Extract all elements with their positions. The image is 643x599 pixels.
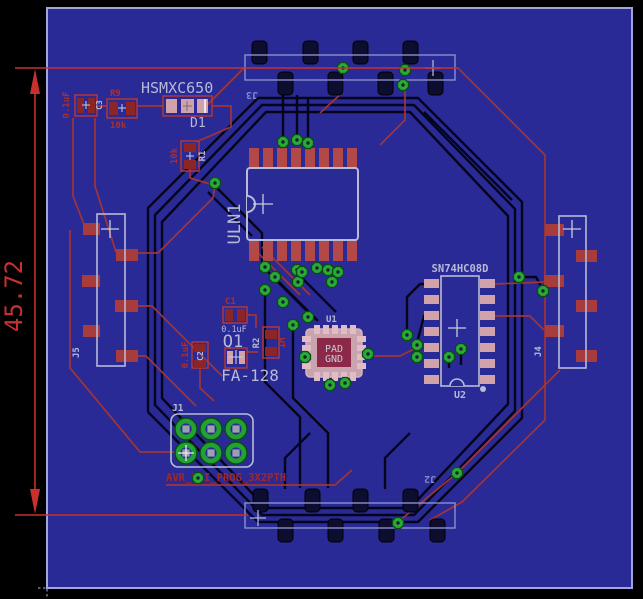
dimension-value: 45.72 — [0, 260, 28, 332]
pad[interactable] — [480, 343, 495, 352]
pad[interactable] — [333, 148, 343, 168]
c2-ref: C2 — [196, 351, 205, 361]
pad[interactable] — [347, 148, 357, 168]
pad[interactable] — [424, 327, 439, 336]
pad[interactable] — [378, 72, 393, 95]
pad[interactable] — [314, 325, 320, 334]
board-drawing: J3 J2 J5 — [0, 0, 643, 599]
pad[interactable] — [278, 72, 293, 95]
pad[interactable] — [305, 148, 315, 168]
pad[interactable] — [424, 375, 439, 384]
pad[interactable] — [252, 41, 267, 64]
u2-ref: U2 — [454, 390, 466, 401]
u1-ref: U1 — [326, 315, 337, 325]
r1-ref: R1 — [198, 151, 208, 162]
pad[interactable] — [197, 99, 208, 113]
via[interactable] — [292, 135, 303, 146]
via[interactable] — [210, 178, 221, 189]
c2-value: 0.1uF — [181, 341, 191, 368]
via[interactable] — [393, 518, 404, 529]
j1-pin[interactable] — [200, 418, 222, 440]
pad[interactable] — [116, 249, 138, 261]
j1-ref: J1 — [172, 403, 184, 414]
via[interactable] — [538, 286, 549, 297]
via[interactable] — [412, 340, 423, 351]
via[interactable] — [278, 297, 289, 308]
via[interactable] — [260, 262, 271, 273]
j1-pin[interactable] — [225, 418, 247, 440]
pad[interactable] — [319, 148, 329, 168]
pad[interactable] — [116, 350, 138, 362]
via[interactable] — [288, 320, 299, 331]
d1-ref: D1 — [190, 116, 206, 131]
pad[interactable] — [403, 41, 418, 64]
pad[interactable] — [480, 295, 495, 304]
via[interactable] — [312, 263, 323, 274]
via[interactable] — [514, 272, 525, 283]
pad[interactable] — [166, 99, 177, 113]
r1-value: 10k — [170, 147, 180, 164]
pad[interactable] — [428, 72, 443, 95]
pad[interactable] — [302, 336, 311, 342]
via[interactable] — [363, 349, 374, 360]
pad[interactable] — [302, 363, 311, 369]
pad[interactable] — [347, 240, 357, 261]
via[interactable] — [297, 267, 308, 278]
pad[interactable] — [323, 325, 329, 334]
pad[interactable] — [277, 240, 287, 261]
via[interactable] — [333, 267, 344, 278]
pad[interactable] — [265, 330, 277, 339]
pad[interactable] — [424, 295, 439, 304]
pad[interactable] — [424, 279, 439, 288]
via[interactable] — [278, 137, 289, 148]
pad[interactable] — [319, 240, 329, 261]
pad[interactable] — [545, 224, 564, 236]
via[interactable] — [300, 352, 311, 363]
r9-ref: R9 — [110, 89, 121, 99]
pad[interactable] — [194, 344, 206, 352]
pad[interactable] — [424, 343, 439, 352]
pad[interactable] — [263, 240, 273, 261]
u2-pin1-dot — [480, 386, 486, 392]
pad[interactable] — [545, 325, 564, 337]
pad[interactable] — [544, 275, 564, 287]
via[interactable] — [398, 80, 409, 91]
pad[interactable] — [314, 372, 320, 381]
pad[interactable] — [424, 359, 439, 368]
pad[interactable] — [291, 240, 301, 261]
pad[interactable] — [109, 102, 118, 115]
pad[interactable] — [379, 519, 394, 542]
pad[interactable] — [430, 519, 445, 542]
c3-value: 0.1uF — [62, 91, 72, 118]
pad[interactable] — [341, 325, 347, 334]
pad[interactable] — [277, 148, 287, 168]
j1-footprint-label: AVR_SPI_PROG_3X2PTH — [166, 472, 286, 484]
via[interactable] — [412, 352, 423, 363]
pad[interactable] — [350, 372, 356, 381]
via[interactable] — [456, 344, 467, 355]
pad[interactable] — [249, 148, 259, 168]
pad[interactable] — [480, 375, 495, 384]
j2-label: J2 — [424, 473, 436, 484]
pad[interactable] — [333, 240, 343, 261]
pad[interactable] — [480, 359, 495, 368]
c3-ref: C3 — [95, 100, 104, 110]
pad[interactable] — [332, 325, 338, 334]
via[interactable] — [444, 352, 455, 363]
u2-pin1-notch — [450, 379, 464, 386]
r9-value: 10k — [110, 121, 127, 131]
via[interactable] — [340, 378, 351, 389]
pad[interactable] — [302, 345, 311, 351]
pad[interactable] — [353, 489, 368, 512]
pad[interactable] — [305, 240, 315, 261]
pad[interactable] — [249, 240, 259, 261]
pad[interactable] — [291, 148, 301, 168]
pad[interactable] — [403, 489, 418, 512]
via[interactable] — [452, 468, 463, 479]
u2-value: SN74HC08D — [432, 263, 489, 275]
d1-value: HSMXC650 — [141, 79, 213, 97]
j1-pin[interactable] — [175, 418, 197, 440]
pad[interactable] — [480, 327, 495, 336]
j1-pin[interactable] — [225, 442, 247, 464]
pad[interactable] — [357, 336, 366, 342]
uln1-label: ULN1 — [225, 204, 245, 245]
q1-value: FA-128 — [221, 366, 279, 385]
pad[interactable] — [328, 519, 343, 542]
u1-pad-text-2: GND — [325, 354, 343, 365]
pad[interactable] — [357, 363, 366, 369]
via[interactable] — [303, 312, 314, 323]
pad[interactable] — [424, 311, 439, 320]
pad[interactable] — [225, 309, 233, 321]
pad[interactable] — [305, 489, 320, 512]
r2-value: 1M — [278, 337, 288, 348]
pcb-editor-canvas: J3 J2 J5 — [0, 0, 643, 599]
pad[interactable] — [115, 300, 138, 312]
q1-ref: Q1 — [223, 332, 243, 352]
j1-pin[interactable] — [200, 442, 222, 464]
pad[interactable] — [265, 347, 277, 356]
via[interactable] — [400, 65, 411, 76]
pad[interactable] — [184, 143, 196, 152]
r2-ref: R2 — [252, 338, 262, 349]
pad[interactable] — [328, 72, 343, 95]
pad[interactable] — [237, 309, 245, 321]
j3-label: J3 — [246, 89, 258, 100]
via[interactable] — [325, 380, 336, 391]
pad[interactable] — [353, 41, 368, 64]
via[interactable] — [303, 138, 314, 149]
j5-label: J5 — [72, 347, 82, 358]
pad[interactable] — [263, 148, 273, 168]
via[interactable] — [270, 272, 281, 283]
c1-ref: C1 — [225, 297, 236, 307]
pad[interactable] — [253, 489, 268, 512]
pad[interactable] — [126, 102, 135, 115]
via[interactable] — [193, 473, 204, 484]
pad[interactable] — [480, 279, 495, 288]
via[interactable] — [260, 285, 271, 296]
j4-label: J4 — [534, 346, 544, 357]
pad[interactable] — [303, 41, 318, 64]
pad[interactable] — [350, 325, 356, 334]
pad[interactable] — [278, 519, 293, 542]
pad[interactable] — [184, 160, 196, 169]
pad[interactable] — [480, 311, 495, 320]
via[interactable] — [402, 330, 413, 341]
